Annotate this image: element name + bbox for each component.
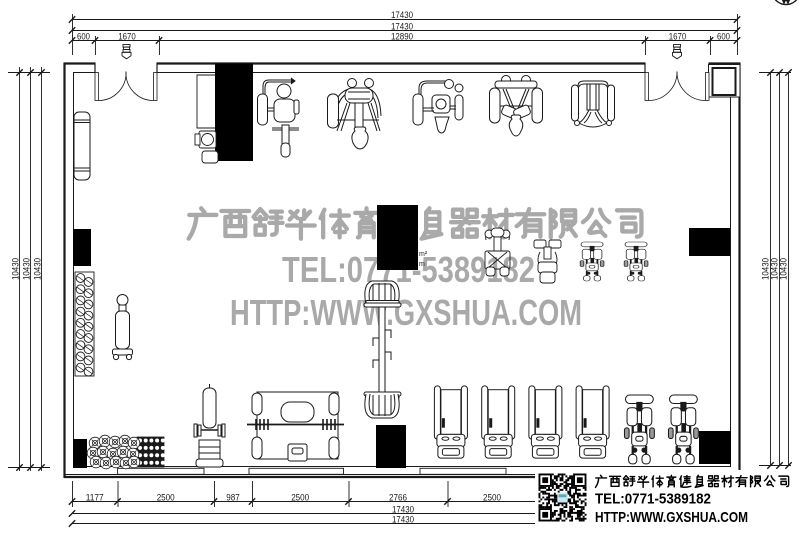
svg-text:10430: 10430 (778, 258, 788, 280)
svg-text:m²: m² (419, 251, 428, 258)
svg-text:17430: 17430 (392, 514, 414, 524)
svg-text:2500: 2500 (157, 492, 175, 502)
svg-text:1177: 1177 (86, 492, 104, 502)
svg-text:10430: 10430 (10, 258, 20, 280)
svg-text:600: 600 (717, 31, 730, 41)
svg-text:1670: 1670 (669, 31, 687, 41)
svg-text:10430: 10430 (21, 258, 31, 280)
svg-text:2500: 2500 (483, 492, 501, 502)
svg-text:12890: 12890 (391, 31, 413, 41)
svg-text:987: 987 (226, 492, 240, 502)
svg-text:17430: 17430 (391, 21, 413, 31)
svg-text:2766: 2766 (389, 492, 407, 502)
svg-text:2500: 2500 (291, 492, 309, 502)
svg-text:1670: 1670 (118, 31, 136, 41)
svg-text:HTTP:WWW.GXSHUA.COM: HTTP:WWW.GXSHUA.COM (230, 292, 582, 333)
svg-text:17430: 17430 (392, 504, 414, 514)
svg-text:10430: 10430 (32, 258, 42, 280)
svg-text:m: m (419, 261, 425, 268)
svg-text:17430: 17430 (391, 10, 413, 20)
svg-text:HTTP:WWW.GXSHUA.COM: HTTP:WWW.GXSHUA.COM (595, 509, 748, 526)
svg-text:600: 600 (77, 31, 90, 41)
svg-text:TEL:0771-5389182: TEL:0771-5389182 (595, 491, 711, 508)
